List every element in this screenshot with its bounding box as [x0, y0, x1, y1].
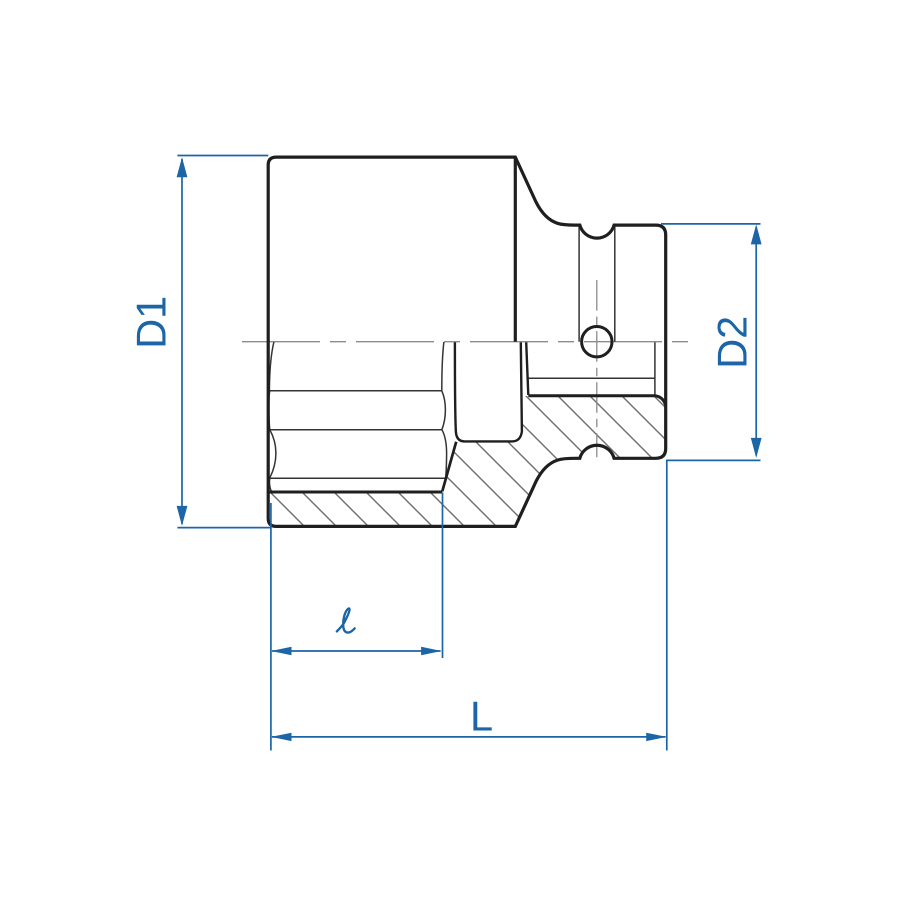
svg-text:L: L	[470, 693, 493, 740]
svg-text:D1: D1	[128, 296, 175, 349]
svg-text:D2: D2	[709, 316, 756, 369]
